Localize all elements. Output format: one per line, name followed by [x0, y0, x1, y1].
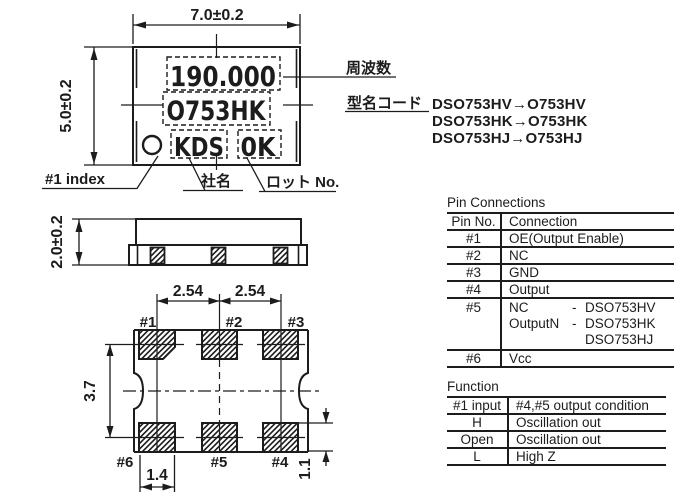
pad-label-6: #6	[117, 454, 134, 471]
pad-label-4: #4	[272, 454, 289, 471]
pin5-model: DSO753HK	[585, 316, 674, 332]
pad-label-2: #2	[226, 314, 243, 331]
pin5-model: DSO753HJ	[585, 332, 674, 348]
height-dimension-lines	[84, 47, 133, 165]
output-condition: Oscillation out	[507, 415, 666, 430]
marking-company: KDS	[174, 133, 224, 163]
dim-pitch-left: 2.54	[173, 283, 204, 300]
input-state: H	[447, 415, 507, 430]
marking-lot: 0K	[241, 133, 277, 163]
marking-model-code: O753HK	[167, 96, 267, 127]
pad-label-1: #1	[140, 314, 157, 331]
table-row: #2 NC	[447, 248, 674, 265]
table-row: #1 OE(Output Enable)	[447, 231, 674, 248]
dim-pitch-right: 2.54	[235, 283, 266, 300]
side-view-pad	[151, 248, 165, 264]
dim-height-label: 5.0±0.2	[58, 79, 75, 132]
table-row: #4 Output	[447, 282, 674, 299]
callout-lot: ロット No.	[266, 174, 339, 191]
output-condition: Oscillation out	[507, 432, 666, 447]
pin-connection-multiline: NC - DSO753HV OutputN - DSO753HK DSO753H…	[500, 299, 674, 349]
pin1-index-circle	[143, 136, 161, 154]
pin5-sep: -	[572, 316, 585, 332]
pin5-signal: OutputN	[509, 316, 572, 332]
pin5-sep	[572, 332, 585, 348]
pad-label-3: #3	[288, 314, 305, 331]
table-row: #6 Vcc	[447, 351, 674, 368]
dim-width-label: 7.0±0.2	[190, 7, 243, 24]
pin-connection: NC	[500, 248, 674, 263]
table-row: H Oscillation out	[447, 415, 666, 432]
pin-no-header: Pin No.	[447, 214, 500, 229]
pin5-sep: -	[572, 300, 585, 316]
side-view-drawing	[72, 219, 307, 265]
pin-number: #3	[447, 265, 500, 280]
callout-model-code: 型名コード	[347, 94, 422, 112]
side-view-lid	[136, 219, 301, 245]
pin-number: #5	[447, 299, 500, 315]
dim-row-pitch: 3.7	[82, 380, 99, 402]
table-row: #3 GND	[447, 265, 674, 282]
marking-frequency: 190.000	[170, 60, 276, 93]
pin-number: #4	[447, 282, 500, 297]
pin-connection: OE(Output Enable)	[500, 231, 674, 246]
side-view-pad	[212, 248, 226, 264]
callout-index: #1 index	[45, 171, 106, 188]
function-table: Function #1 input #4,#5 output condition…	[447, 380, 666, 466]
pin-number: #2	[447, 248, 500, 263]
pin-connections-table: Pin Connections Pin No. Connection #1 OE…	[447, 196, 674, 368]
side-view-pad	[274, 248, 288, 264]
pin-connections-title: Pin Connections	[447, 196, 674, 210]
pin5-signal	[509, 332, 572, 348]
input-state: Open	[447, 432, 507, 447]
pin5-model: DSO753HV	[585, 300, 674, 316]
dim-pad-width: 1.4	[146, 467, 168, 484]
model-code-note-3: DSO753HJ→O753HJ	[432, 130, 583, 147]
model-code-note-1: DSO753HV→O753HV	[432, 96, 586, 113]
table-row: L High Z	[447, 449, 666, 466]
callout-frequency: 周波数	[346, 59, 392, 77]
output-header: #4,#5 output condition	[507, 398, 666, 413]
pin-table-header-row: Pin No. Connection	[447, 214, 674, 231]
pin-connection: GND	[500, 265, 674, 280]
input-state: L	[447, 449, 507, 464]
connection-header: Connection	[500, 214, 674, 229]
pin-number: #6	[447, 351, 500, 366]
pin-connection: Output	[500, 282, 674, 297]
pin-connection: Vcc	[500, 351, 674, 366]
pad-label-5: #5	[211, 454, 228, 471]
dim-thickness-label: 2.0±0.2	[49, 215, 66, 268]
function-title: Function	[447, 380, 666, 394]
thickness-dimension-lines	[72, 219, 136, 265]
pin-number: #1	[447, 231, 500, 246]
callout-company: 社名	[200, 172, 231, 190]
datasheet-drawing-page: 7.0±0.2 5.0±0.2 190.000 O753HK KDS 0K 周波…	[0, 0, 698, 500]
pin5-signal: NC	[509, 300, 572, 316]
function-header-row: #1 input #4,#5 output condition	[447, 398, 666, 415]
input-header: #1 input	[447, 398, 507, 413]
model-code-note-2: DSO753HK→O753HK	[432, 113, 588, 130]
dim-pad-height: 1.1	[297, 458, 314, 480]
output-condition: High Z	[507, 449, 666, 464]
table-row-pin5: #5 NC - DSO753HV OutputN - DSO753HK	[447, 299, 674, 351]
table-row: Open Oscillation out	[447, 432, 666, 449]
